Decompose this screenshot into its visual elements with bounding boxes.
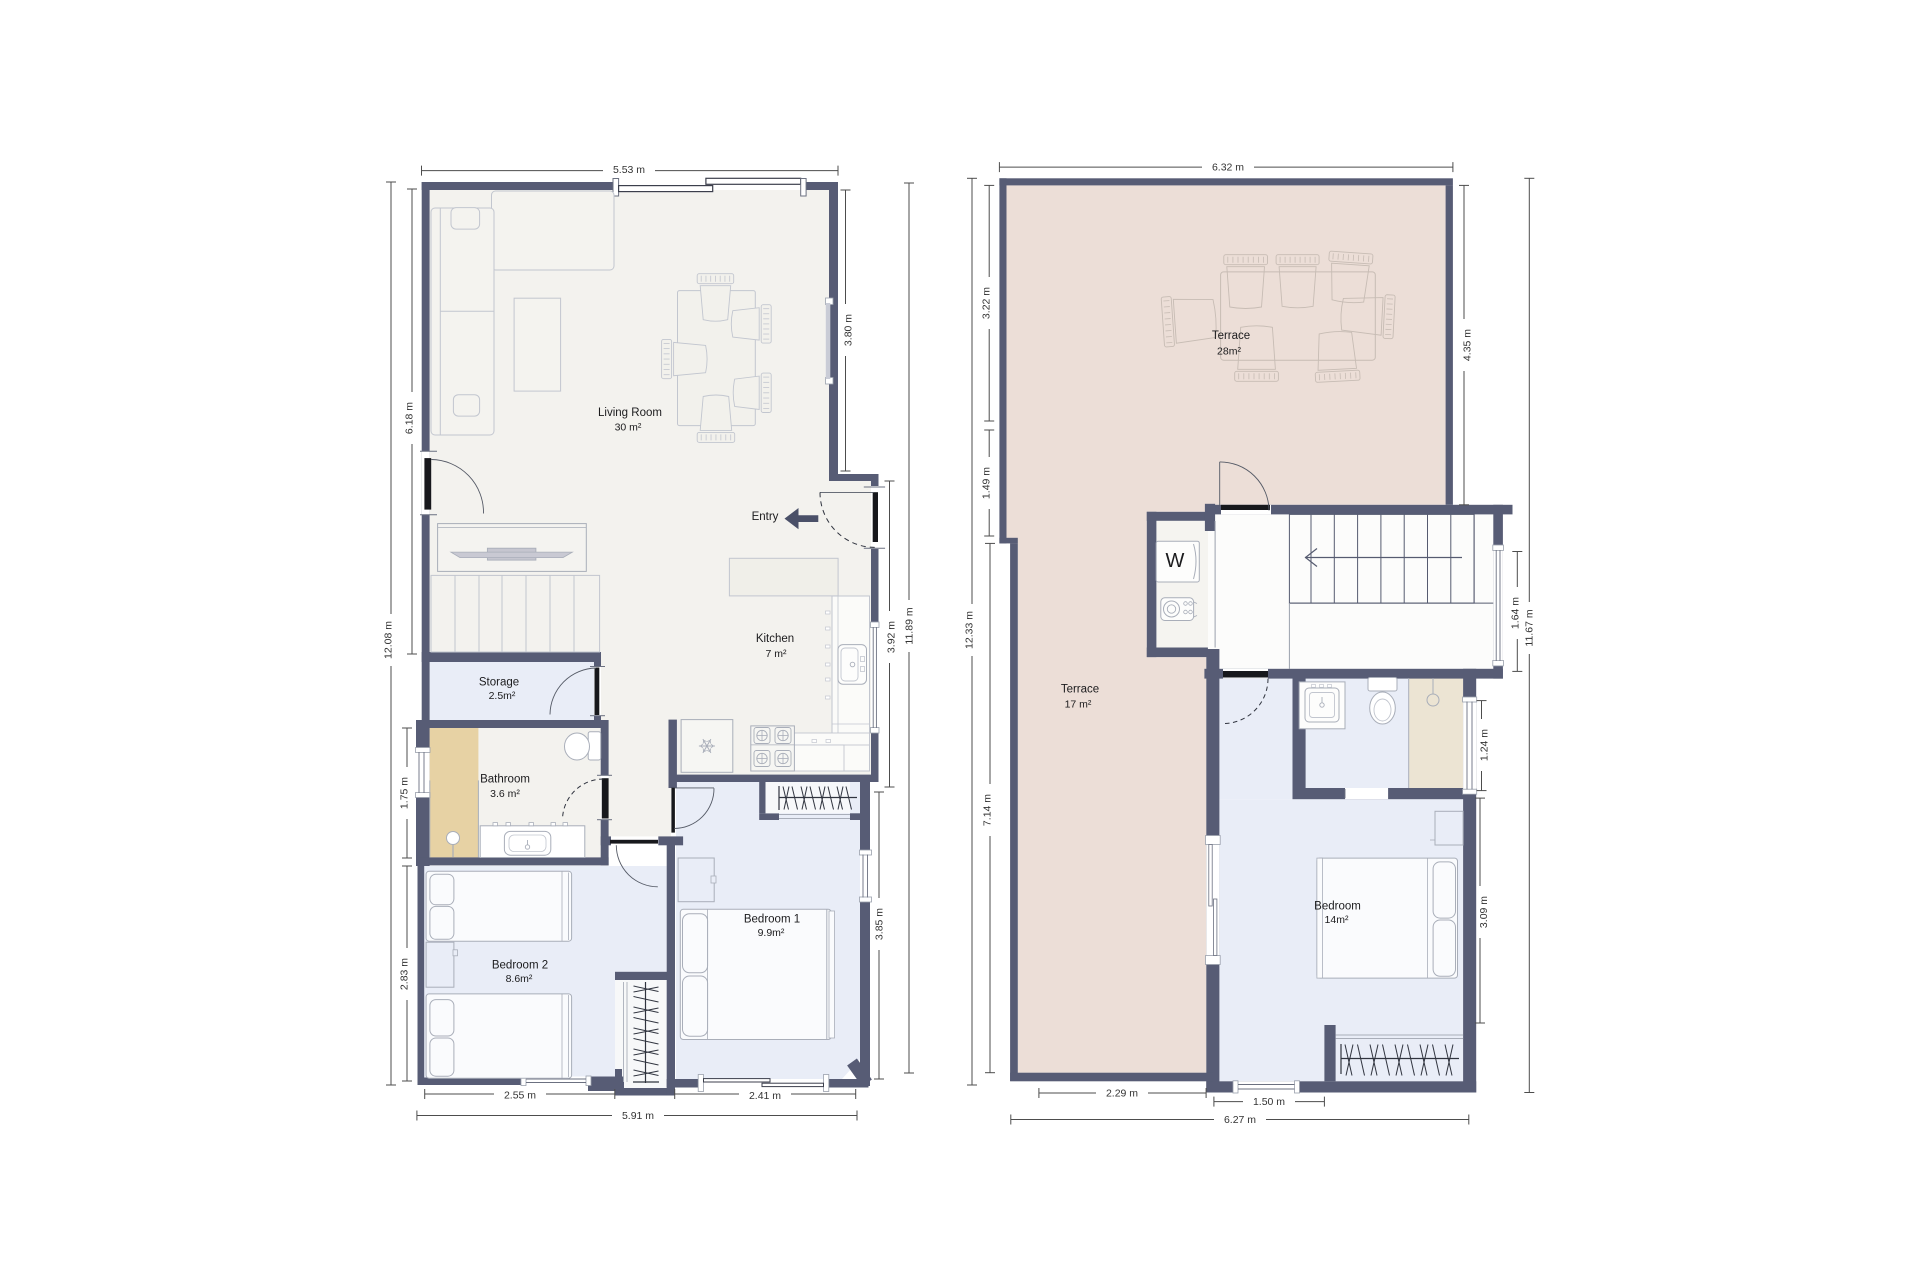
svg-text:Bedroom 1: Bedroom 1 bbox=[744, 914, 800, 926]
svg-text:2.83 m: 2.83 m bbox=[399, 958, 411, 990]
svg-text:7 m²: 7 m² bbox=[766, 648, 788, 660]
svg-text:W: W bbox=[1166, 550, 1185, 572]
svg-text:1.64 m: 1.64 m bbox=[1510, 597, 1522, 629]
svg-text:3.92 m: 3.92 m bbox=[886, 621, 898, 653]
svg-text:Bedroom 2: Bedroom 2 bbox=[492, 960, 548, 972]
svg-text:Kitchen: Kitchen bbox=[756, 633, 794, 645]
svg-text:14m²: 14m² bbox=[1325, 914, 1349, 926]
svg-text:1.24 m: 1.24 m bbox=[1479, 729, 1491, 761]
svg-text:3.80 m: 3.80 m bbox=[843, 314, 855, 346]
svg-text:Terrace: Terrace bbox=[1061, 684, 1099, 696]
svg-text:5.91 m: 5.91 m bbox=[622, 1110, 654, 1122]
svg-text:Living Room: Living Room bbox=[598, 407, 662, 419]
svg-text:3.85 m: 3.85 m bbox=[874, 908, 886, 940]
svg-text:5.53 m: 5.53 m bbox=[613, 164, 645, 176]
svg-text:Storage: Storage bbox=[479, 677, 519, 689]
svg-text:4.35 m: 4.35 m bbox=[1462, 329, 1474, 361]
svg-text:9.9m²: 9.9m² bbox=[758, 927, 785, 939]
svg-text:17 m²: 17 m² bbox=[1065, 699, 1092, 711]
svg-text:2.29 m: 2.29 m bbox=[1106, 1088, 1138, 1100]
svg-text:2.55 m: 2.55 m bbox=[504, 1090, 536, 1102]
svg-text:7.14 m: 7.14 m bbox=[982, 794, 994, 826]
svg-text:1.50 m: 1.50 m bbox=[1253, 1096, 1285, 1108]
svg-text:Terrace: Terrace bbox=[1212, 330, 1250, 342]
svg-text:6.32 m: 6.32 m bbox=[1212, 162, 1244, 174]
svg-text:2.41 m: 2.41 m bbox=[749, 1090, 781, 1102]
svg-text:3.22 m: 3.22 m bbox=[981, 287, 993, 319]
svg-text:11.67 m: 11.67 m bbox=[1524, 609, 1536, 646]
svg-text:6.27 m: 6.27 m bbox=[1224, 1114, 1256, 1126]
svg-text:Bedroom: Bedroom bbox=[1314, 901, 1361, 913]
svg-text:12.08 m: 12.08 m bbox=[383, 621, 395, 659]
svg-text:6.18 m: 6.18 m bbox=[404, 402, 416, 434]
svg-text:2.5m²: 2.5m² bbox=[489, 690, 516, 702]
svg-text:3.09 m: 3.09 m bbox=[1478, 896, 1490, 928]
svg-text:11.89 m: 11.89 m bbox=[904, 607, 916, 644]
svg-text:28m²: 28m² bbox=[1217, 346, 1241, 358]
svg-text:12.33 m: 12.33 m bbox=[964, 611, 976, 649]
svg-text:1.49 m: 1.49 m bbox=[981, 467, 993, 499]
svg-text:1.75 m: 1.75 m bbox=[399, 777, 411, 809]
svg-text:3.6 m²: 3.6 m² bbox=[490, 788, 520, 800]
svg-text:Entry: Entry bbox=[752, 511, 779, 523]
svg-text:8.6m²: 8.6m² bbox=[506, 973, 533, 985]
svg-text:Bathroom: Bathroom bbox=[480, 774, 530, 786]
svg-text:30 m²: 30 m² bbox=[615, 422, 642, 434]
